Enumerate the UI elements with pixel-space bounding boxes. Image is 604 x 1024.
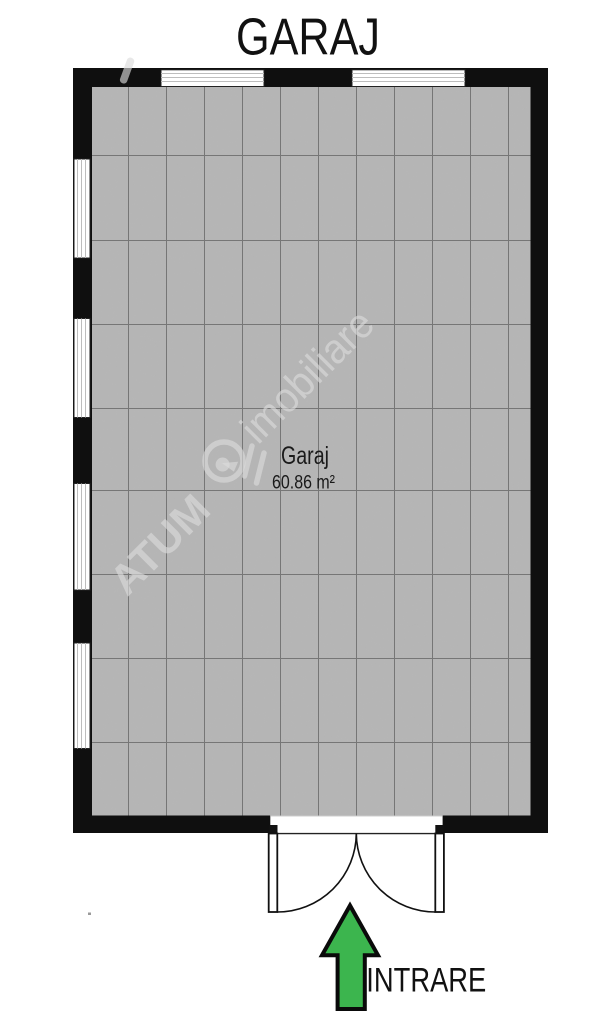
svg-text:60.86 m²: 60.86 m² [272, 472, 335, 493]
svg-text:Garaj: Garaj [281, 442, 329, 470]
svg-text:GARAJ: GARAJ [236, 8, 380, 66]
svg-text:INTRARE: INTRARE [366, 961, 486, 999]
